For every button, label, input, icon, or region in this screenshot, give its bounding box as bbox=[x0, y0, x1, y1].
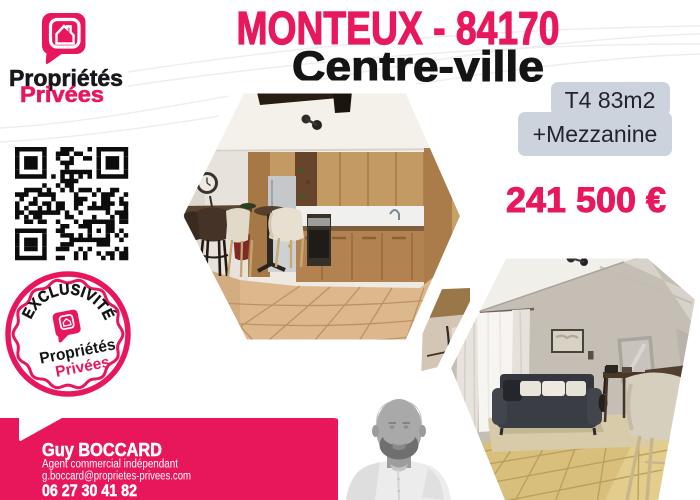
svg-text:Guy BOCCARD: Guy BOCCARD bbox=[42, 440, 162, 460]
svg-text:+Mezzanine: +Mezzanine bbox=[533, 121, 658, 147]
svg-text:06 27 30 41 82: 06 27 30 41 82 bbox=[42, 481, 137, 500]
svg-text:Privées: Privées bbox=[20, 82, 104, 107]
svg-text:Agent commercial indépendant: Agent commercial indépendant bbox=[42, 459, 179, 471]
svg-text:241 500 €: 241 500 € bbox=[506, 181, 666, 220]
svg-text:T4 83m2: T4 83m2 bbox=[565, 87, 656, 113]
